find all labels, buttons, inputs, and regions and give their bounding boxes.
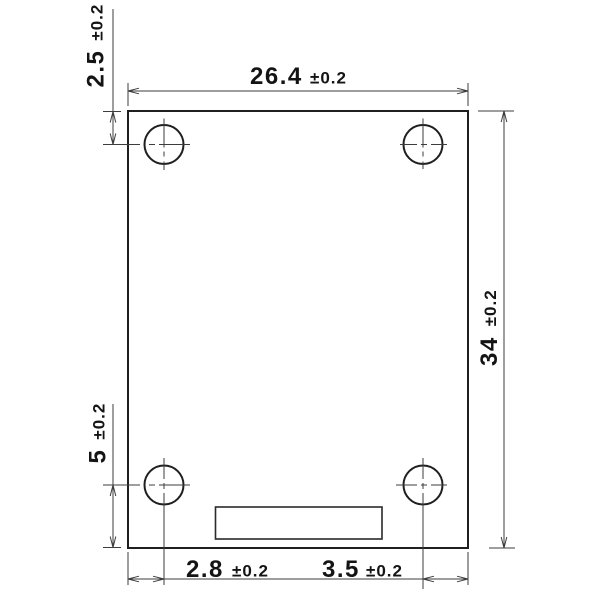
svg-text:±0.2: ±0.2 xyxy=(310,69,347,88)
svg-text:3.5: 3.5 xyxy=(322,556,360,583)
svg-text:2.8: 2.8 xyxy=(186,556,224,583)
svg-text:5±0.2: 5±0.2 xyxy=(85,403,112,464)
svg-text:26.4: 26.4 xyxy=(250,63,303,90)
svg-text:±0.2: ±0.2 xyxy=(366,562,403,581)
svg-text:±0.2: ±0.2 xyxy=(232,562,269,581)
